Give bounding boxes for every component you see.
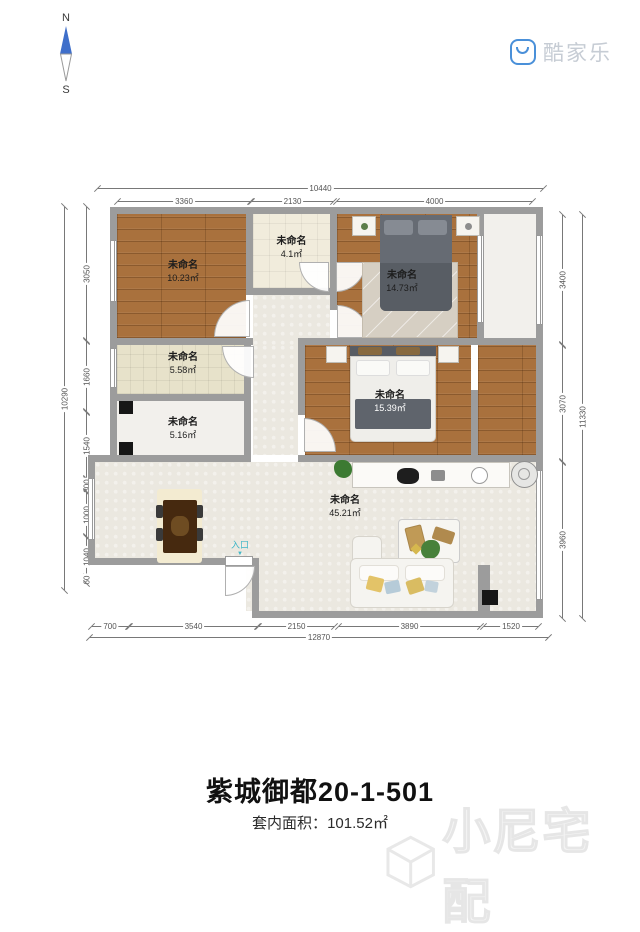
room-label-hall-small: 未命名 4.1㎡: [253, 236, 330, 260]
dimension-segment: 1040: [86, 537, 87, 577]
pillow: [358, 347, 382, 355]
dimension-bottom-total: 12870: [90, 637, 548, 638]
compass-needle-icon: [57, 26, 75, 82]
wall: [88, 455, 251, 462]
window: [477, 235, 484, 323]
dimension-segment: 1000: [86, 492, 87, 537]
compass-south-label: S: [50, 84, 82, 96]
nightstand: [352, 216, 376, 236]
sofa: [350, 558, 454, 608]
wall: [246, 207, 253, 295]
centerpiece-plant: [171, 516, 189, 536]
bed-double: [380, 215, 452, 311]
floor-balcony-right: [484, 214, 536, 338]
dimension-segment: 60: [86, 577, 87, 583]
dimension-segment: 3540: [130, 626, 257, 627]
room-label-bedroom-top-left: 未命名 10.23㎡: [133, 260, 233, 284]
pillow: [396, 360, 430, 376]
floor-closet-right: [478, 345, 536, 455]
dimension-segment: 4000: [337, 201, 532, 202]
wall: [298, 455, 543, 462]
dimension-segment: 700: [92, 626, 128, 627]
compass-north-label: N: [50, 12, 82, 24]
dimension-segment: 2130: [252, 201, 333, 202]
plan-area-summary: 套内面积：101.52㎡: [0, 812, 640, 833]
wall: [304, 338, 543, 345]
dimension-segment: 2150: [259, 626, 334, 627]
appliance-icon: [431, 470, 445, 481]
nightstand: [326, 346, 347, 363]
window: [88, 478, 95, 540]
column: [119, 442, 133, 455]
compass: N S: [50, 12, 82, 96]
area-value: 101.52㎡: [327, 815, 388, 832]
plant-icon: [361, 223, 368, 230]
column: [482, 590, 498, 605]
nightstand: [456, 216, 480, 236]
wall: [298, 338, 305, 415]
pillow: [384, 220, 413, 235]
dimension-segment: 3960: [562, 462, 563, 618]
plan-title: 紫城御都20-1-501: [0, 770, 640, 809]
window: [110, 348, 117, 388]
kujiale-logo: 酷家乐: [510, 37, 612, 67]
sofa-cushion: [405, 565, 445, 581]
window: [536, 470, 543, 600]
dimension-segment: 3070: [562, 345, 563, 462]
room-label-storage-mid: 未命名 5.58㎡: [133, 352, 233, 376]
dimension-segment: 1540: [86, 412, 87, 479]
window: [110, 240, 117, 302]
entrance-arrow-icon: ▼: [222, 551, 258, 558]
room-label-storage-lower: 未命名 5.16㎡: [133, 417, 233, 441]
kitchen-counter: [352, 462, 510, 488]
dimension-right-total: 11330: [582, 215, 583, 618]
dining-chair: [196, 505, 203, 518]
nightstand: [438, 346, 459, 363]
window: [536, 235, 543, 325]
column: [119, 401, 133, 414]
wall: [471, 390, 478, 462]
room-label-bedroom-middle: 未命名 15.39㎡: [340, 390, 440, 414]
washing-machine: [511, 461, 538, 488]
dining-table: [163, 500, 197, 553]
dimension-left-total: 10290: [64, 207, 65, 590]
wall: [330, 207, 337, 310]
bed-headboard: [350, 346, 436, 356]
wall: [110, 338, 253, 345]
stove-icon: [397, 468, 419, 484]
dining-chair: [156, 528, 163, 541]
wall: [252, 611, 543, 618]
dimension-segment: 1520: [484, 626, 538, 627]
dimension-segment: 1660: [86, 341, 87, 412]
pillow: [418, 220, 447, 235]
washer-drum-icon: [518, 468, 530, 480]
kujiale-smile-shield-icon: [510, 39, 536, 65]
sink-icon: [471, 467, 488, 484]
dimension-top-total: 10440: [98, 188, 543, 189]
dining-chair: [156, 505, 163, 518]
coffee-table: [398, 519, 460, 563]
dining-chair: [196, 528, 203, 541]
wall: [110, 394, 251, 401]
throw-pillow: [366, 575, 385, 592]
room-label-living: 未命名 45.21㎡: [295, 495, 395, 519]
area-label: 套内面积：: [252, 815, 327, 832]
dimension-segment: 3890: [339, 626, 480, 627]
dimension-segment: 3050: [86, 207, 87, 341]
plant: [421, 540, 440, 559]
pillow: [356, 360, 390, 376]
kujiale-logo-text: 酷家乐: [543, 37, 612, 67]
room-label-bedroom-top-right: 未命名 14.73㎡: [352, 270, 452, 294]
pillow: [396, 347, 420, 355]
dimension-segment: 3360: [118, 201, 250, 202]
throw-pillow: [384, 580, 401, 595]
wall: [244, 401, 251, 462]
throw-pillow: [424, 580, 439, 593]
floor-hallway-lower: [253, 345, 298, 455]
lamp-icon: [465, 223, 472, 230]
entrance-door-leaf: [225, 556, 253, 566]
entrance-label: 入口 ▼: [222, 541, 258, 557]
plant: [334, 460, 352, 478]
dimension-segment: 3400: [562, 215, 563, 345]
